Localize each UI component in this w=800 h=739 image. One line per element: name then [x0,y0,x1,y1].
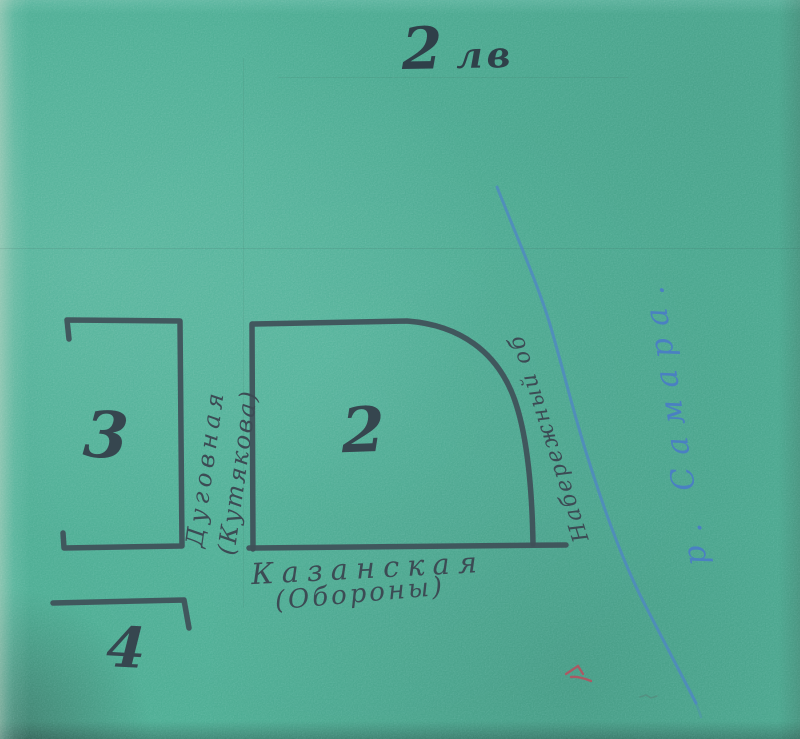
map-title: 2лв [401,13,515,83]
block-4-number: 4 [105,614,147,682]
block-3-number: 3 [81,397,131,475]
map-title-suffix: лв [456,34,515,77]
block-2-outline [252,321,533,549]
map-title-number: 2 [401,14,447,83]
red-scribble-mark [566,666,591,681]
pencil-smudge [640,695,657,698]
river-line-fade [692,696,701,717]
block-2-number: 2 [340,393,386,467]
block-2-bottom-edge [249,545,566,548]
